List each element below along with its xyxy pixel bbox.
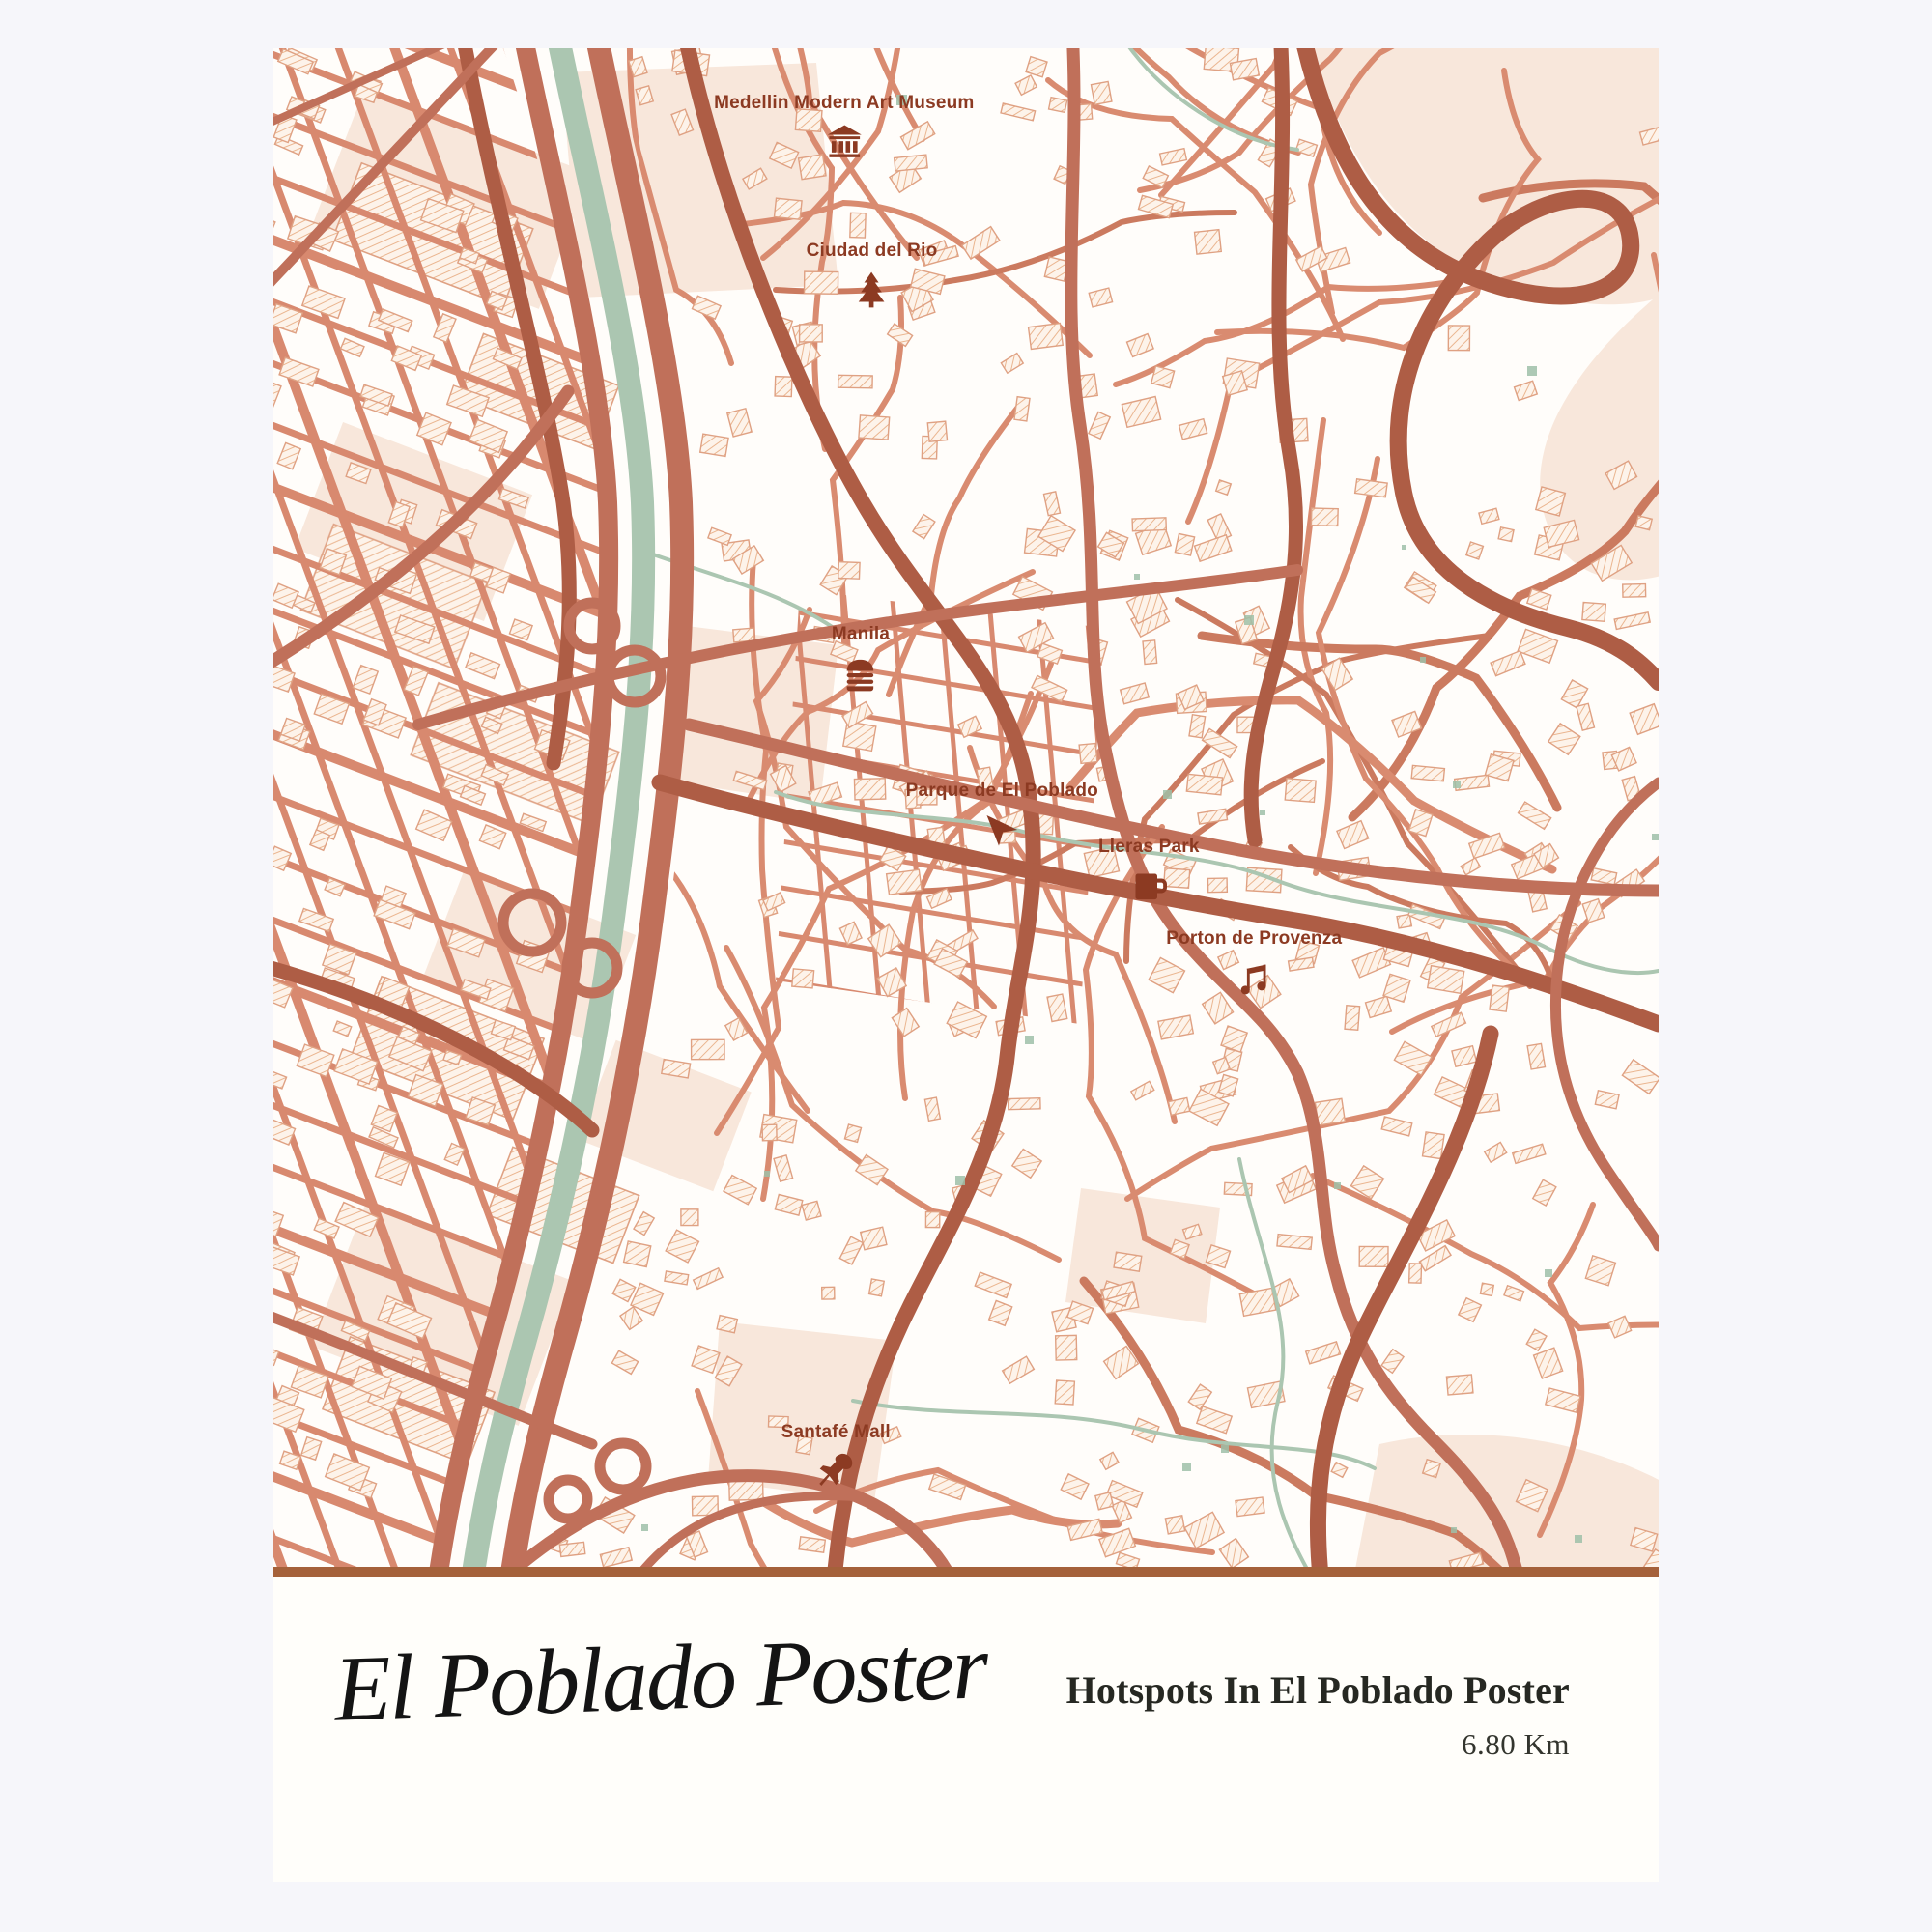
map-marker-tree[interactable]: Ciudad del Rio: [807, 241, 938, 309]
marker-label: Porton de Provenza: [1166, 929, 1342, 950]
map-marker-pushpin[interactable]: Santafé Mall: [781, 1423, 891, 1491]
burger-icon: [841, 654, 880, 693]
map-marker-music[interactable]: Porton de Provenza: [1166, 929, 1342, 997]
map-marker-museum[interactable]: Medellin Modern Art Museum: [714, 94, 974, 161]
marker-label: Ciudad del Rio: [807, 241, 938, 262]
marker-label: Medellin Modern Art Museum: [714, 94, 974, 114]
poster-footer: El Poblado Poster Hotspots In El Poblado…: [273, 1577, 1659, 1882]
museum-icon: [825, 123, 864, 161]
map-marker-cursor[interactable]: Parque de El Poblado: [906, 781, 1098, 849]
poster-info: Hotspots In El Poblado Poster 6.80 Km: [990, 1577, 1570, 1882]
map-markers: Medellin Modern Art MuseumCiudad del Rio…: [273, 48, 1659, 1567]
cursor-icon: [982, 810, 1021, 849]
poster-script-title: El Poblado Poster: [333, 1615, 989, 1740]
map-footer-divider: [273, 1567, 1659, 1577]
marker-label: Santafé Mall: [781, 1423, 891, 1443]
marker-label: Parque de El Poblado: [906, 781, 1098, 802]
poster: Medellin Modern Art MuseumCiudad del Rio…: [273, 48, 1659, 1882]
map-marker-mug[interactable]: Lleras Park: [1098, 838, 1200, 905]
tree-icon: [852, 270, 891, 309]
mug-icon: [1129, 867, 1168, 905]
marker-label: Lleras Park: [1098, 838, 1200, 858]
poster-heading: Hotspots In El Poblado Poster: [990, 1669, 1570, 1712]
music-icon: [1235, 958, 1273, 997]
map-marker-burger[interactable]: Manila: [832, 625, 890, 693]
marker-label: Manila: [832, 625, 890, 645]
map-canvas[interactable]: Medellin Modern Art MuseumCiudad del Rio…: [273, 48, 1659, 1567]
pushpin-icon: [816, 1452, 855, 1491]
poster-distance: 6.80 Km: [990, 1729, 1570, 1759]
script-title-wrap: El Poblado Poster: [331, 1577, 990, 1882]
